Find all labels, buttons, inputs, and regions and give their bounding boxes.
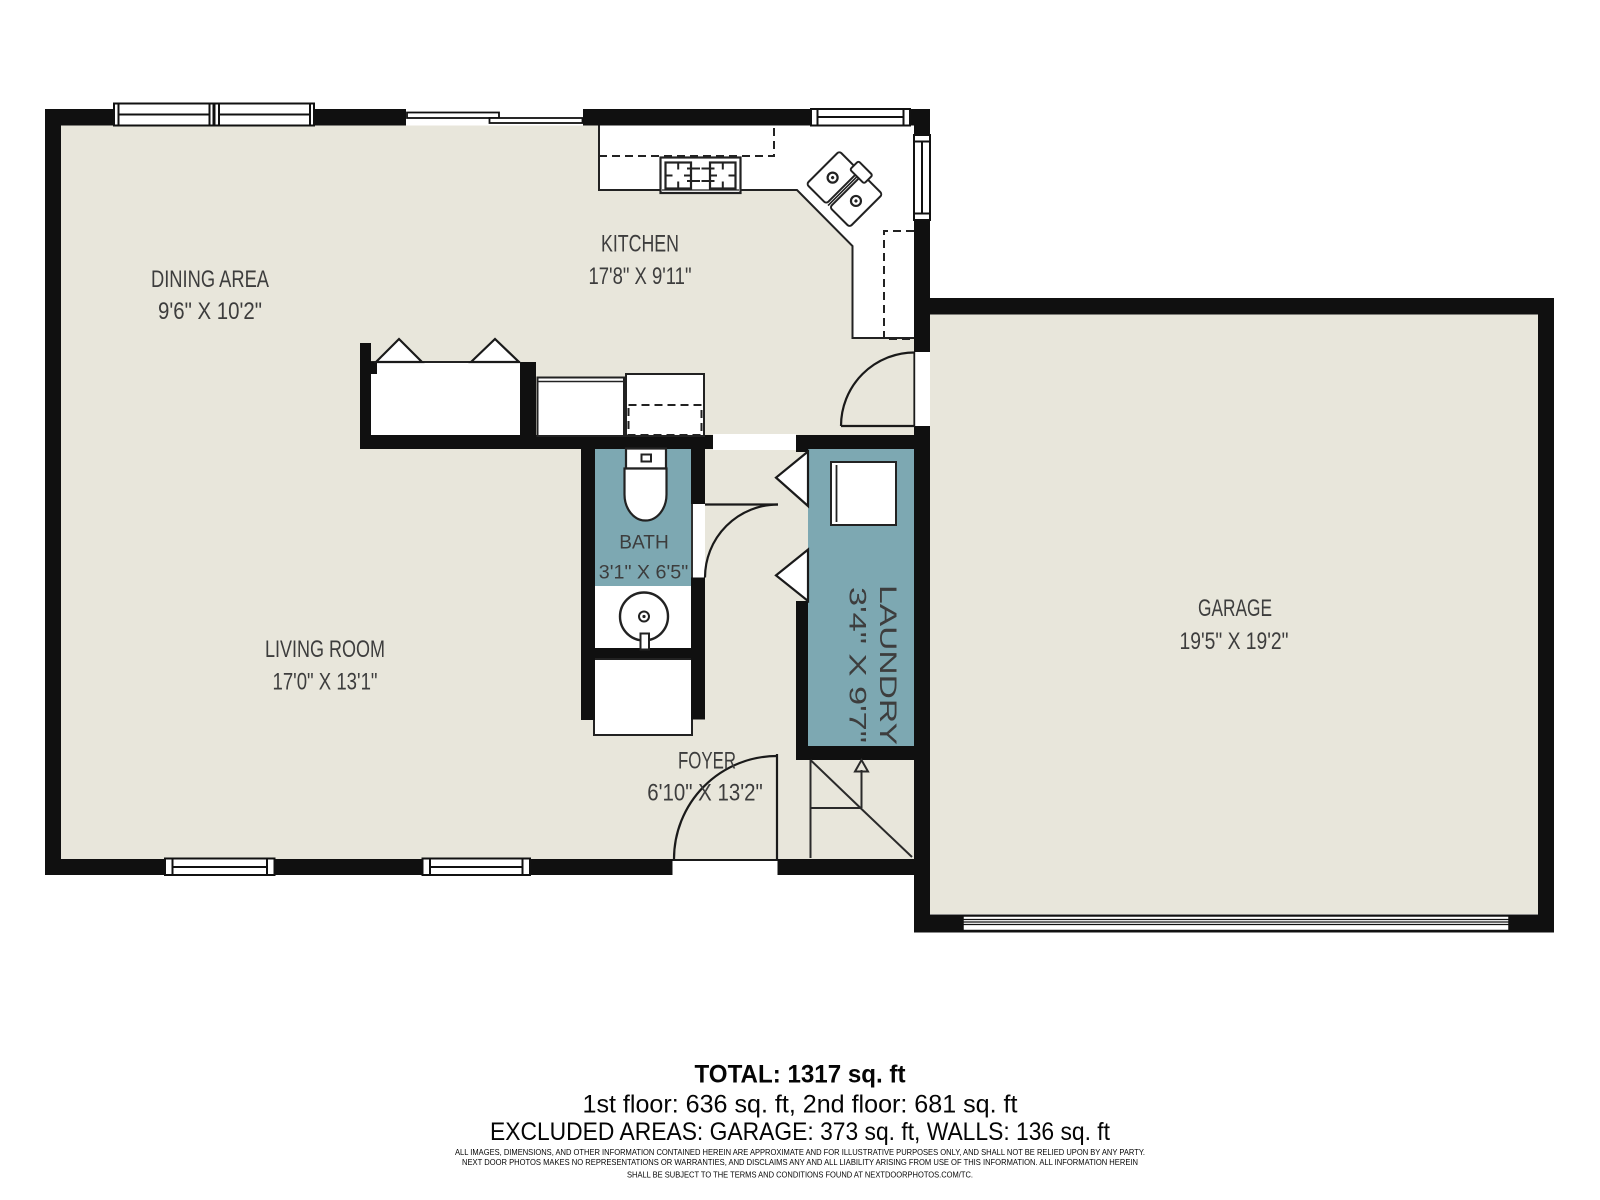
svg-text:FOYER: FOYER [678, 748, 736, 775]
svg-text:KITCHEN: KITCHEN [601, 231, 679, 258]
svg-text:BATH: BATH [619, 532, 669, 554]
svg-text:ALL IMAGES, DIMENSIONS, AND OT: ALL IMAGES, DIMENSIONS, AND OTHER INFORM… [455, 1147, 1145, 1157]
svg-text:9'6" X 10'2": 9'6" X 10'2" [158, 298, 262, 325]
svg-text:3'1" X 6'5": 3'1" X 6'5" [599, 562, 689, 584]
svg-text:1st floor: 636 sq. ft, 2nd flo: 1st floor: 636 sq. ft, 2nd floor: 681 sq… [583, 1091, 1018, 1119]
svg-text:17'8" X 9'11": 17'8" X 9'11" [589, 263, 692, 290]
svg-text:LAUNDRY: LAUNDRY [874, 585, 901, 745]
svg-text:GARAGE: GARAGE [1198, 595, 1272, 622]
svg-text:LIVING ROOM: LIVING ROOM [265, 636, 385, 663]
svg-text:3'4" X 9'7": 3'4" X 9'7" [844, 587, 871, 743]
svg-text:17'0" X 13'1": 17'0" X 13'1" [273, 669, 378, 696]
svg-text:SHALL BE SUBJECT TO THE TERMS: SHALL BE SUBJECT TO THE TERMS AND CONDIT… [627, 1170, 973, 1180]
svg-text:6'10" X 13'2": 6'10" X 13'2" [647, 780, 763, 807]
svg-text:TOTAL: 1317 sq. ft: TOTAL: 1317 sq. ft [695, 1061, 907, 1089]
svg-text:NEXT DOOR PHOTOS MAKES NO REPR: NEXT DOOR PHOTOS MAKES NO REPRESENTATION… [462, 1157, 1138, 1167]
svg-text:DINING AREA: DINING AREA [151, 266, 269, 293]
svg-text:19'5" X 19'2": 19'5" X 19'2" [1180, 628, 1289, 655]
svg-text:EXCLUDED AREAS: GARAGE: 373 sq: EXCLUDED AREAS: GARAGE: 373 sq. ft, WALL… [490, 1118, 1110, 1146]
